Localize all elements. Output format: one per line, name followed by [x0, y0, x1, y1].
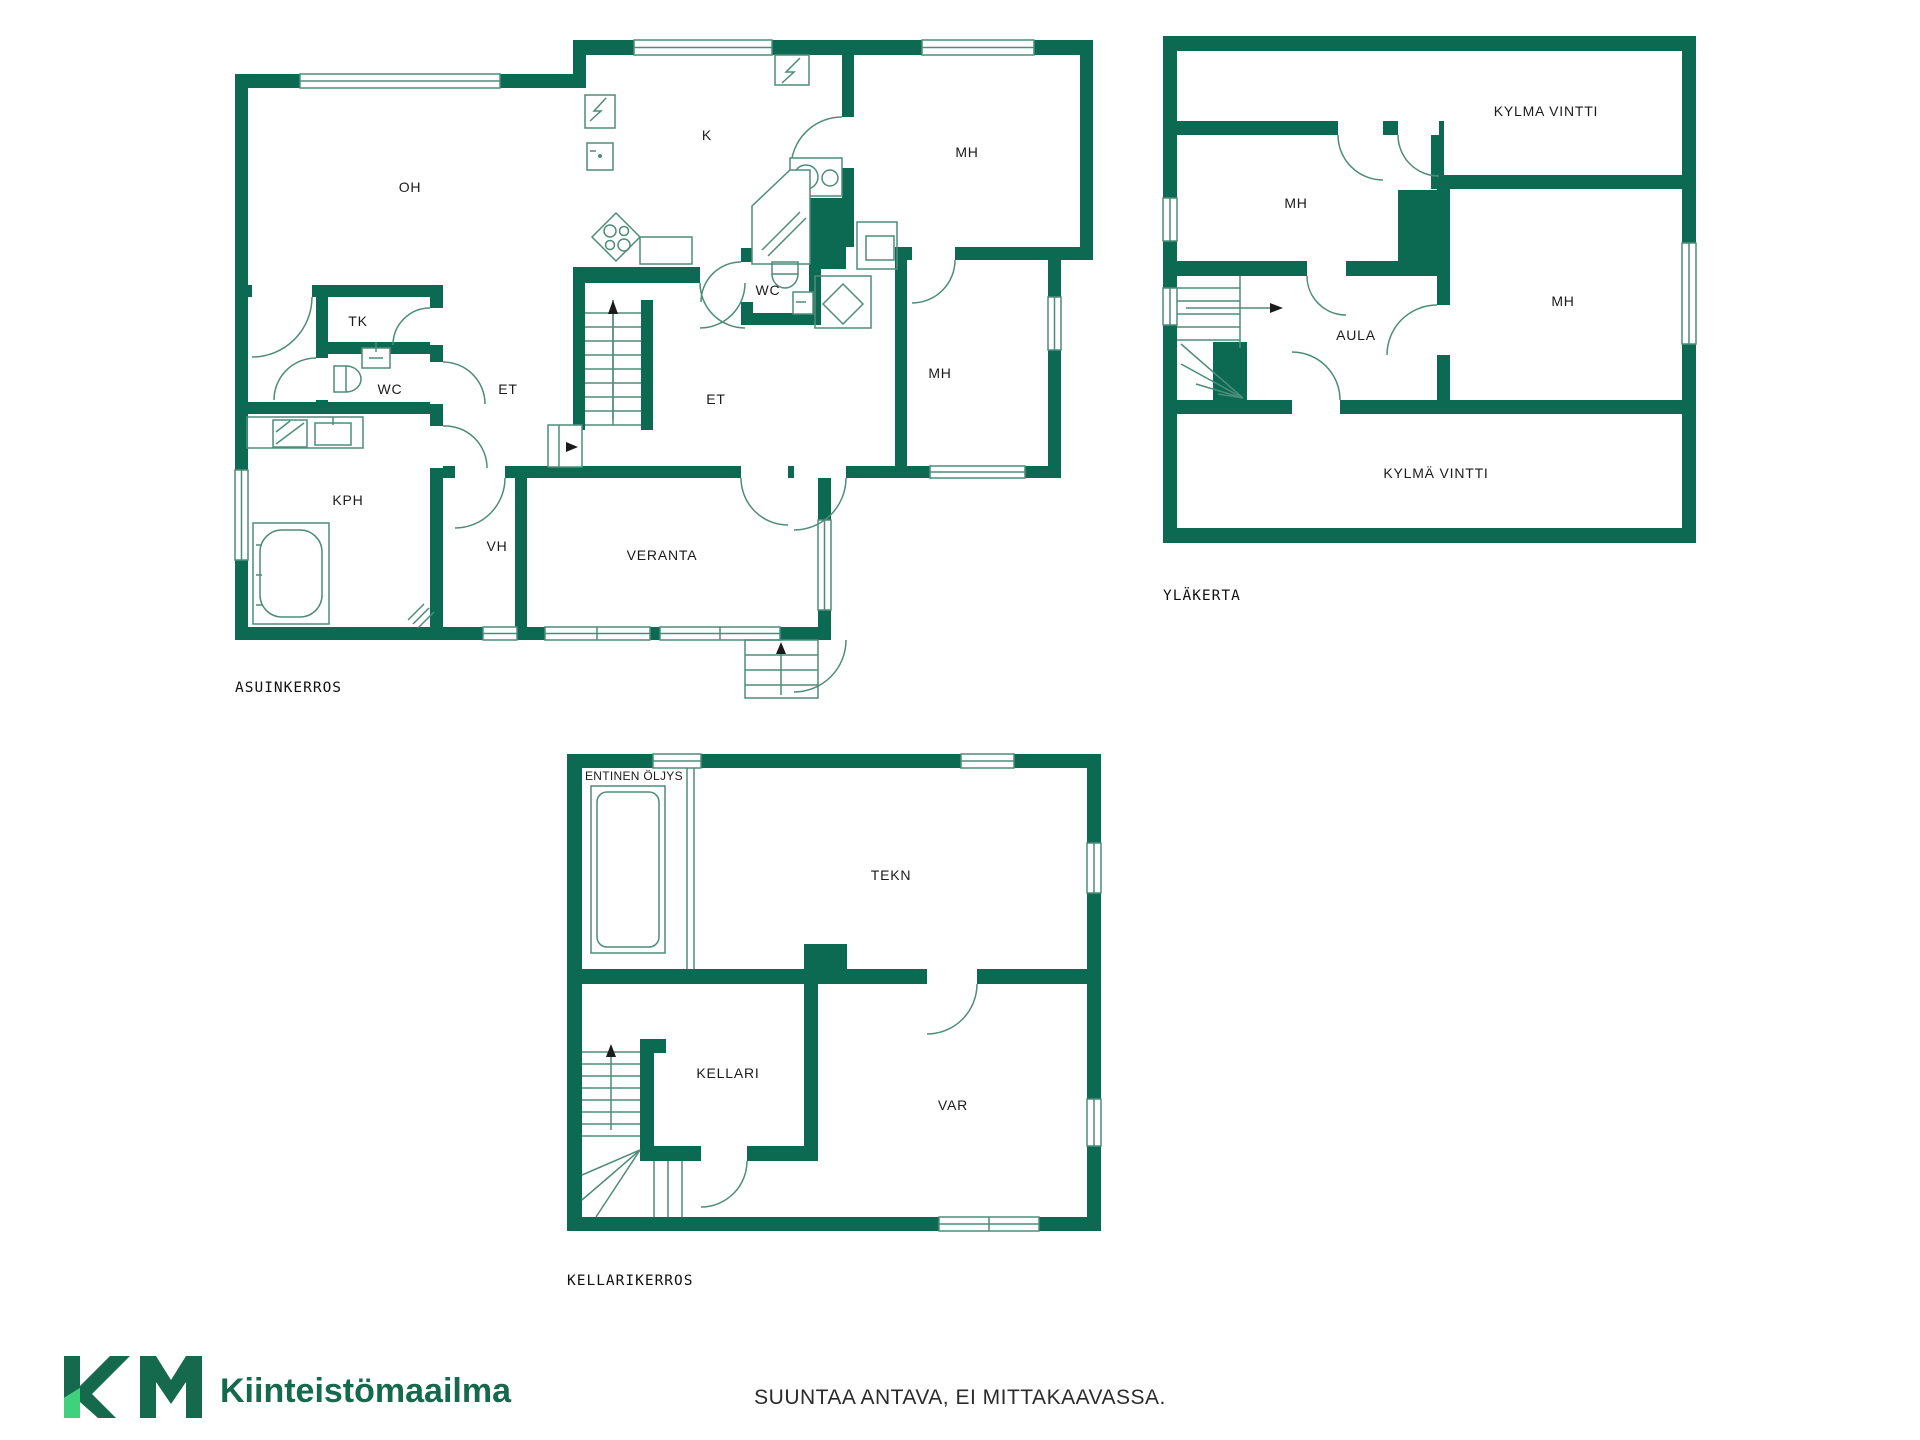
- window: [545, 627, 650, 640]
- room-label-et-main: ET: [706, 391, 726, 407]
- floor-caption-ylakerta: YLÄKERTA: [1163, 586, 1241, 604]
- room-label-k: K: [702, 127, 712, 143]
- walls-basement: [567, 754, 1101, 1231]
- window: [1682, 243, 1696, 344]
- sink-icon: [315, 417, 351, 445]
- meter-box-icon: [587, 143, 613, 170]
- room-label-var: VAR: [938, 1097, 968, 1113]
- oil-room: [591, 768, 694, 969]
- stairs-up-arrow: [608, 300, 618, 314]
- window: [1163, 198, 1177, 241]
- room-label-kellari: KELLARI: [696, 1065, 759, 1081]
- window: [922, 40, 1034, 55]
- room-label-et-left: ET: [498, 381, 518, 397]
- room-label-vh: VH: [486, 538, 507, 554]
- window: [634, 40, 772, 55]
- room-label-oh: OH: [399, 179, 422, 195]
- window: [653, 754, 701, 768]
- window: [235, 470, 248, 560]
- counter-cabinet: [752, 170, 810, 264]
- stairs-up-arrow: [606, 1044, 616, 1057]
- stairs-basement: [582, 1044, 682, 1217]
- window: [1048, 297, 1061, 350]
- stairs-arrow: [1270, 303, 1283, 313]
- room-label-kylma-vintti-top: KYLMA VINTTI: [1494, 103, 1599, 119]
- room-label-tekn: TEKN: [871, 867, 912, 883]
- steps-up-arrow: [776, 642, 786, 654]
- floor-caption-asuinkerros: ASUINKERROS: [235, 680, 342, 696]
- room-label-mh-right: MH: [1551, 293, 1574, 309]
- kitchen-fixtures: [585, 55, 842, 264]
- window: [1087, 843, 1101, 893]
- toilet-icon: [334, 366, 361, 392]
- window: [1163, 288, 1177, 325]
- electrical-box-icon: [775, 55, 809, 85]
- window: [818, 520, 831, 610]
- window: [930, 466, 1025, 478]
- window: [961, 754, 1014, 768]
- outdoor-steps-floor1: [745, 640, 818, 698]
- room-label-kph: KPH: [332, 492, 363, 508]
- basement-stair-door: [548, 425, 582, 467]
- room-label-mh-2: MH: [928, 365, 951, 381]
- room-label-tk: TK: [348, 313, 368, 329]
- floor-caption-kellarikerros: KELLARIKERROS: [567, 1273, 694, 1289]
- floor-plan-page: { "page": { "kind": "real-estate floor p…: [0, 0, 1920, 1440]
- room-label-wc-mid: WC: [756, 282, 781, 298]
- floorplan-ylakerta: KYLMA VINTTI MH MH AULA KYLMÄ VINTTI YLÄ…: [1163, 36, 1696, 604]
- floorplan-kellarikerros: ENTINEN ÖLJYS TEKN KELLARI VAR KELLARIKE…: [567, 754, 1101, 1289]
- bathtub-icon: [253, 523, 329, 624]
- sink-icon: [793, 292, 813, 314]
- room-label-wc-left: WC: [378, 381, 403, 397]
- room-label-mh-left: MH: [1284, 195, 1307, 211]
- oil-tank-icon: [591, 786, 665, 953]
- floorplan-asuinkerros: OH K MH WC MH TK WC ET ET KPH VH VERANTA…: [0, 0, 1920, 1440]
- doors-basement: [701, 984, 977, 1207]
- room-label-veranta: VERANTA: [627, 547, 698, 563]
- room-label-mh-1: MH: [955, 144, 978, 160]
- window: [660, 627, 780, 640]
- window: [483, 627, 517, 640]
- kph-fixtures: [247, 417, 434, 628]
- room-label-aula: AULA: [1336, 327, 1376, 343]
- electrical-box-icon: [585, 95, 615, 128]
- window: [300, 74, 500, 88]
- stairs-floor1: [548, 300, 641, 467]
- stove-icon: [592, 213, 692, 264]
- window: [939, 1217, 1039, 1231]
- disclaimer-text: SUUNTAA ANTAVA, EI MITTAKAAVASSA.: [0, 1386, 1920, 1410]
- room-label-kylma-vintti-bottom: KYLMÄ VINTTI: [1383, 465, 1488, 481]
- window: [1087, 1099, 1101, 1146]
- room-label-entinen-oljys: ENTINEN ÖLJYS: [585, 769, 683, 783]
